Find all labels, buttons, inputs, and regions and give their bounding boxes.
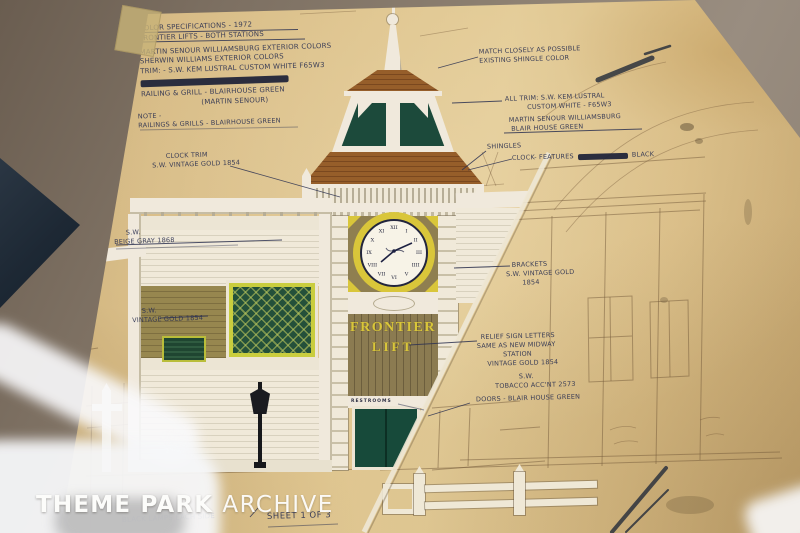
watermark-bold: THEME PARK [36, 492, 213, 518]
annotation-shingles: SHINGLES [487, 141, 522, 151]
photo-of-architectural-drawing: XII I II III IIII V VI VII VIII IX X XI … [0, 0, 800, 533]
annotation-match-shingle: MATCH CLOSELY AS POSSIBLE EXISTING SHING… [479, 44, 581, 66]
black-swatch-bar [578, 152, 628, 159]
restrooms-label: RESTROOMS [351, 399, 392, 405]
spec-block: COLOR SPECIFICATIONS - 1972 FRONTIER LIF… [139, 18, 334, 110]
annotation-relief-letters: RELIEF SIGN LETTERS SAME AS NEW MIDWAY S… [477, 331, 559, 369]
watermark: THEME PARKARCHIVE [36, 492, 334, 518]
annotation-brackets: BRACKETS S.W. VINTAGE GOLD 1854 [506, 259, 575, 289]
annotation-beige-gray: S.W. BEIGE GRAY 1868 [114, 227, 175, 247]
annotation-tobacco: S.W. TOBACCO ACC'NT 2573 [495, 371, 576, 391]
watermark-light: ARCHIVE [222, 492, 333, 518]
masking-tape [114, 5, 161, 57]
annotation-clock-trim: CLOCK TRIM S.W. VINTAGE GOLD 1854 [152, 149, 241, 170]
navy-matboard [0, 155, 85, 315]
annotation-all-trim: ALL TRIM: S.W. KEM LUSTRAL CUSTOM WHITE … [505, 91, 612, 113]
annotation-vintage-gold-wall: S.W. VINTAGE GOLD 1854 [132, 305, 204, 326]
annotation-blair-house: MARTIN SENOUR WILLIAMSBURG BLAIR HOUSE G… [509, 112, 622, 134]
